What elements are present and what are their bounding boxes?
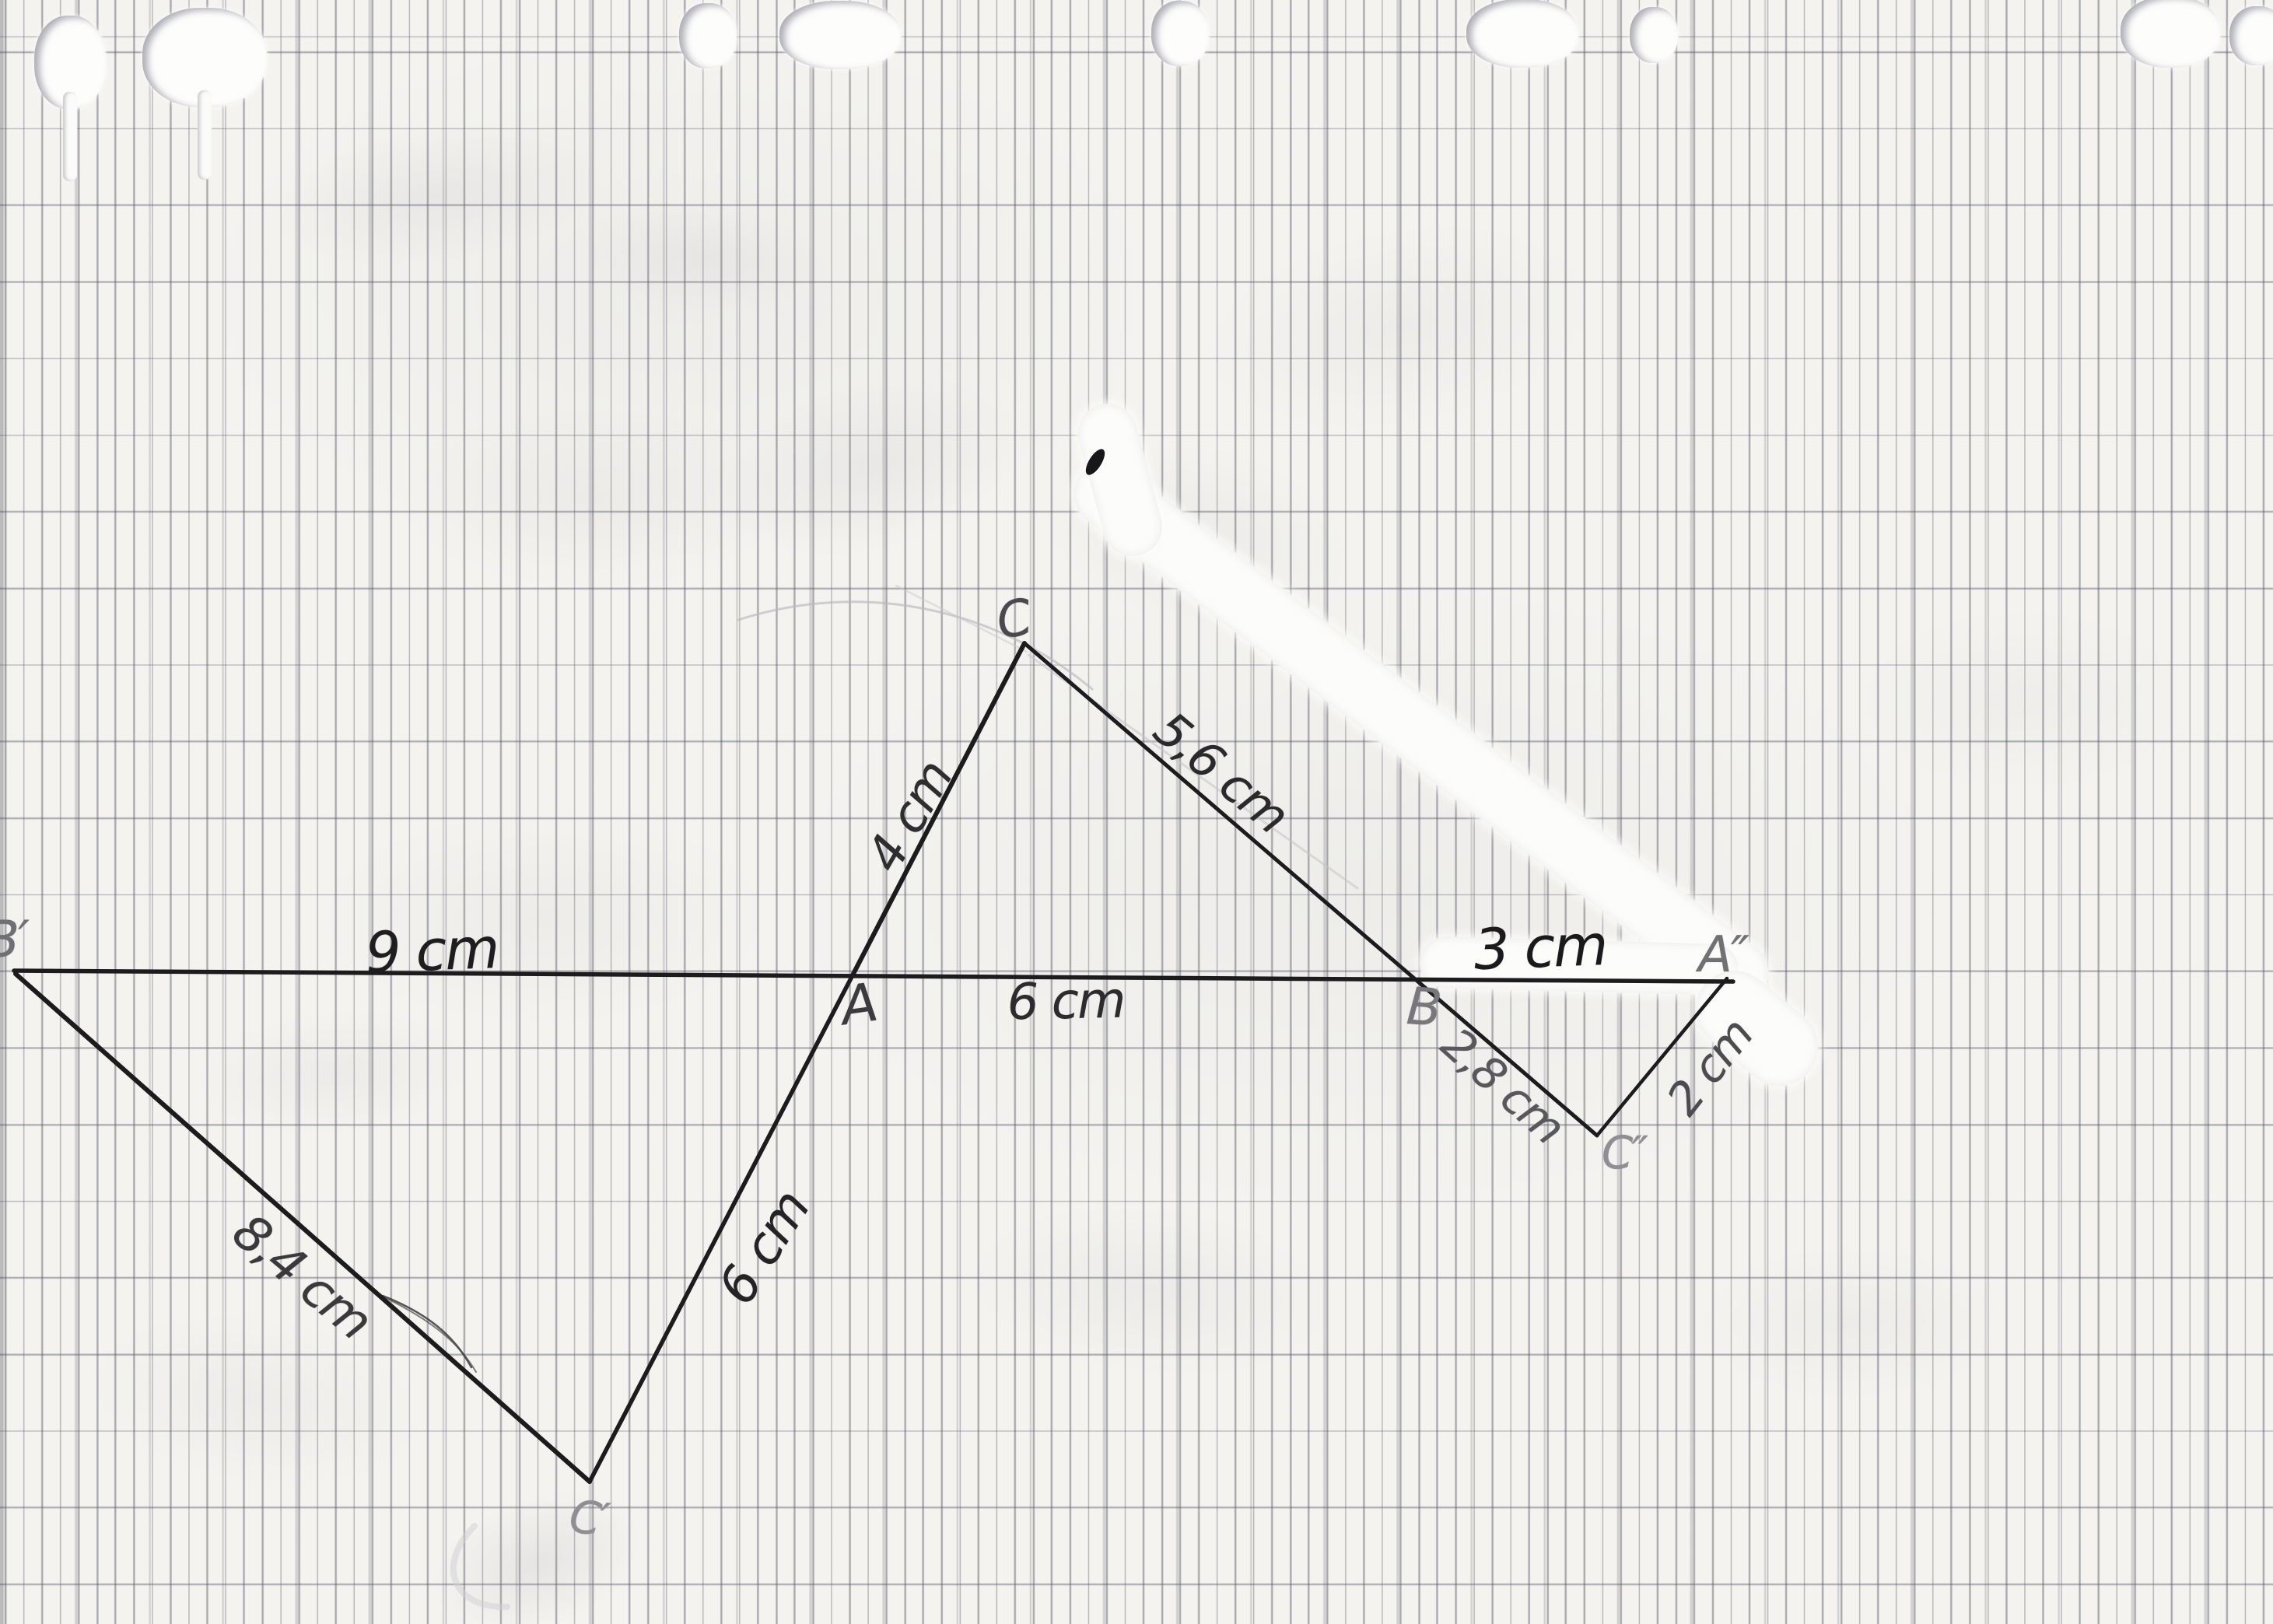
point-label-c-prime: C′ xyxy=(567,1490,611,1547)
seg-bprime-cprime xyxy=(16,974,590,1482)
dim-bprime-a: 9 cm xyxy=(364,915,499,985)
point-label-c-second: C″ xyxy=(1602,1126,1647,1179)
scanned-graph-paper-page: 9 cm6 cm3 cm4 cm5,6 cm2,8 cm2 cm8,4 cm6 … xyxy=(0,0,2273,1624)
point-label-b: B xyxy=(1405,976,1443,1038)
ghost-curl-below-cprime xyxy=(454,1526,507,1607)
geometry-figure-drawing xyxy=(0,0,2273,1624)
point-label-b-prime: B′ xyxy=(0,910,28,970)
point-label-a-second: A″ xyxy=(1698,926,1748,984)
pen-slip-on-bprime-cprime xyxy=(383,1296,471,1367)
dim-b-asecond: 3 cm xyxy=(1473,912,1607,982)
pen-slip-on-bprime-cprime-2 xyxy=(384,1297,476,1372)
compass-arc-through-c xyxy=(738,602,1092,689)
seg-cprime-a xyxy=(590,974,853,1482)
erased-line-remnant xyxy=(1082,446,1108,478)
dim-a-b: 6 cm xyxy=(1007,972,1125,1032)
